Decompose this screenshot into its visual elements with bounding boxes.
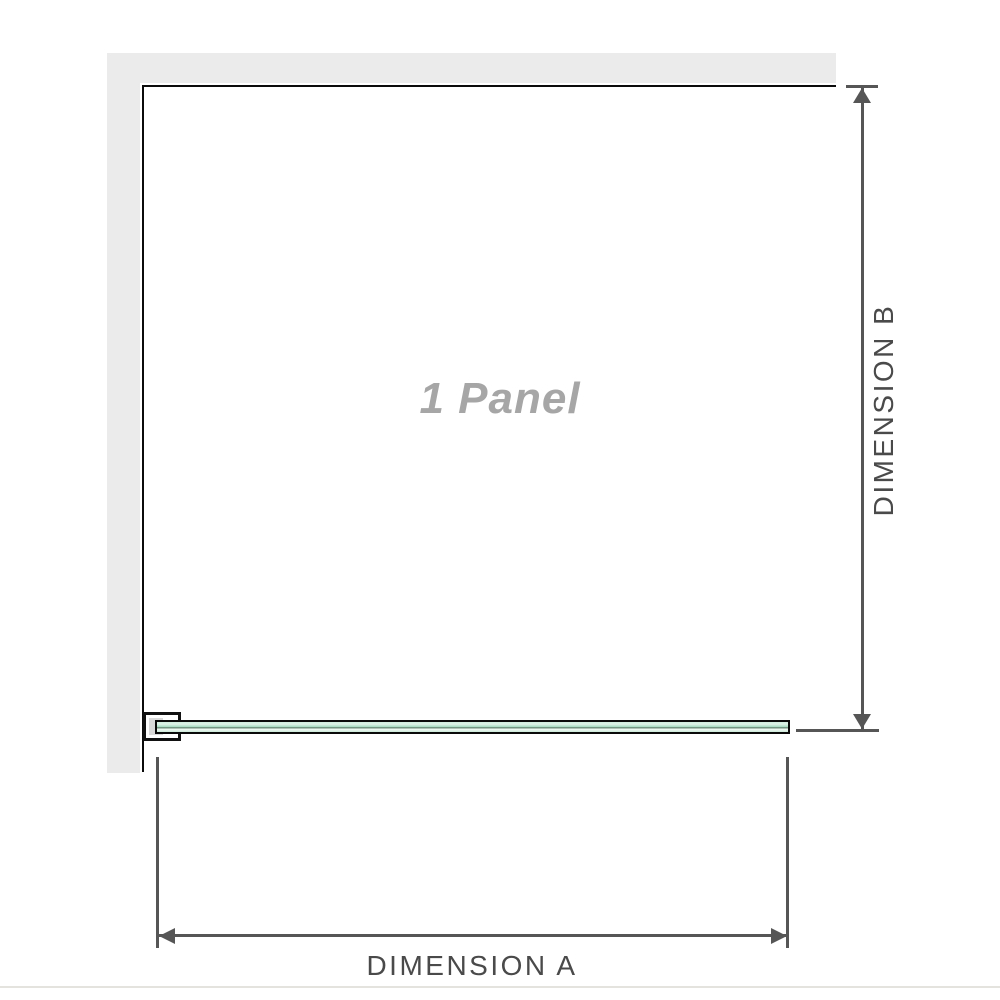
wall-left	[107, 53, 140, 773]
dimension-a-label: DIMENSION A	[366, 950, 577, 982]
extension-line-right	[786, 757, 789, 948]
arrow-down-icon	[853, 714, 871, 729]
dimension-a-line	[158, 934, 788, 937]
arrow-right-icon	[771, 928, 787, 944]
bottom-divider	[0, 986, 1000, 988]
wall-top	[107, 53, 836, 83]
panel-count-label: 1 Panel	[419, 374, 580, 424]
glass-panel	[155, 720, 790, 734]
dimension-diagram: 1 Panel DIMENSION B DIMENSION A	[0, 0, 1000, 1000]
panel-edge-left	[142, 85, 144, 772]
dimension-b-label: DIMENSION B	[868, 304, 900, 517]
dimension-b-tick-bottom	[796, 729, 879, 732]
extension-line-left	[156, 757, 159, 948]
panel-edge-top	[143, 85, 836, 87]
arrow-left-icon	[159, 928, 175, 944]
arrow-up-icon	[853, 88, 871, 103]
dimension-b-line	[861, 88, 864, 730]
